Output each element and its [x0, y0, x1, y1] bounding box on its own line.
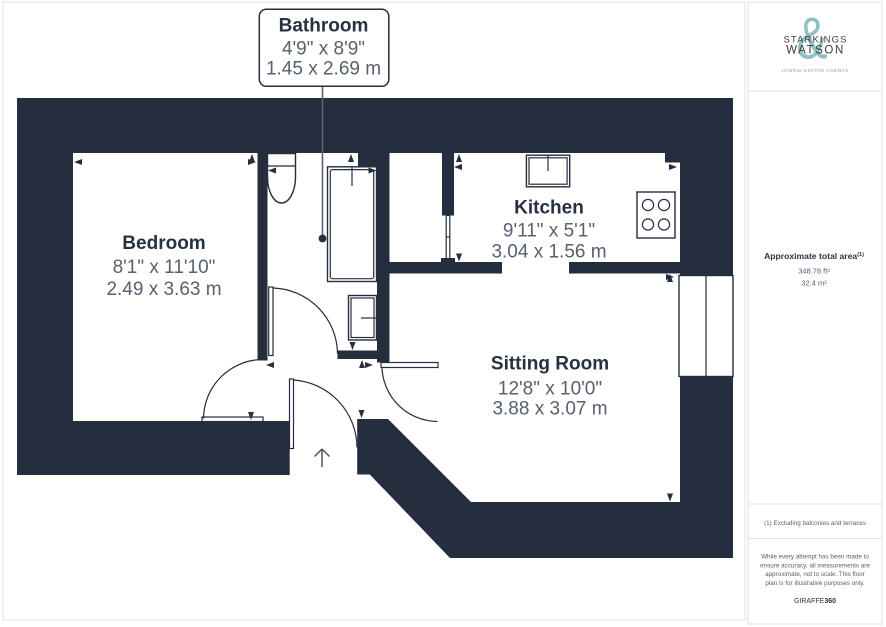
svg-text:ensure accuracy, all measureme: ensure accuracy, all measurements are — [760, 562, 870, 569]
svg-text:HYBRID ESTATE AGENTS: HYBRID ESTATE AGENTS — [781, 68, 849, 74]
svg-text:Sitting Room: Sitting Room — [491, 354, 609, 375]
svg-text:Bedroom: Bedroom — [122, 233, 205, 254]
svg-text:Kitchen: Kitchen — [514, 198, 584, 219]
svg-text:12'8" x 10'0": 12'8" x 10'0" — [498, 379, 602, 400]
svg-text:Approximate total area(1): Approximate total area(1) — [764, 251, 864, 261]
svg-text:8'1" x 11'10": 8'1" x 11'10" — [113, 257, 216, 278]
svg-text:While every attempt has been m: While every attempt has been made to — [761, 554, 869, 561]
svg-text:3.88 x 3.07 m: 3.88 x 3.07 m — [492, 399, 607, 420]
svg-text:32.4 m²: 32.4 m² — [801, 279, 827, 288]
svg-text:9'11" x 5'1": 9'11" x 5'1" — [503, 221, 595, 242]
svg-text:4'9" x 8'9": 4'9" x 8'9" — [282, 39, 365, 60]
svg-text:plan is for illustrative purpo: plan is for illustrative purposes only. — [765, 580, 865, 587]
svg-text:2.49 x 3.63 m: 2.49 x 3.63 m — [106, 279, 221, 300]
svg-text:1.45 x 2.69 m: 1.45 x 2.69 m — [266, 59, 381, 80]
svg-text:approximate, not to scale. Thi: approximate, not to scale. This floor — [765, 571, 865, 578]
svg-text:348.78 ft²: 348.78 ft² — [798, 267, 830, 276]
svg-text:3.04 x 1.56 m: 3.04 x 1.56 m — [491, 242, 606, 263]
svg-text:WATSON: WATSON — [786, 45, 845, 57]
svg-text:GIRAFFE360: GIRAFFE360 — [794, 598, 836, 605]
svg-text:Bathroom: Bathroom — [279, 16, 369, 37]
svg-text:(1) Excluding balconies and te: (1) Excluding balconies and terraces — [764, 520, 866, 527]
